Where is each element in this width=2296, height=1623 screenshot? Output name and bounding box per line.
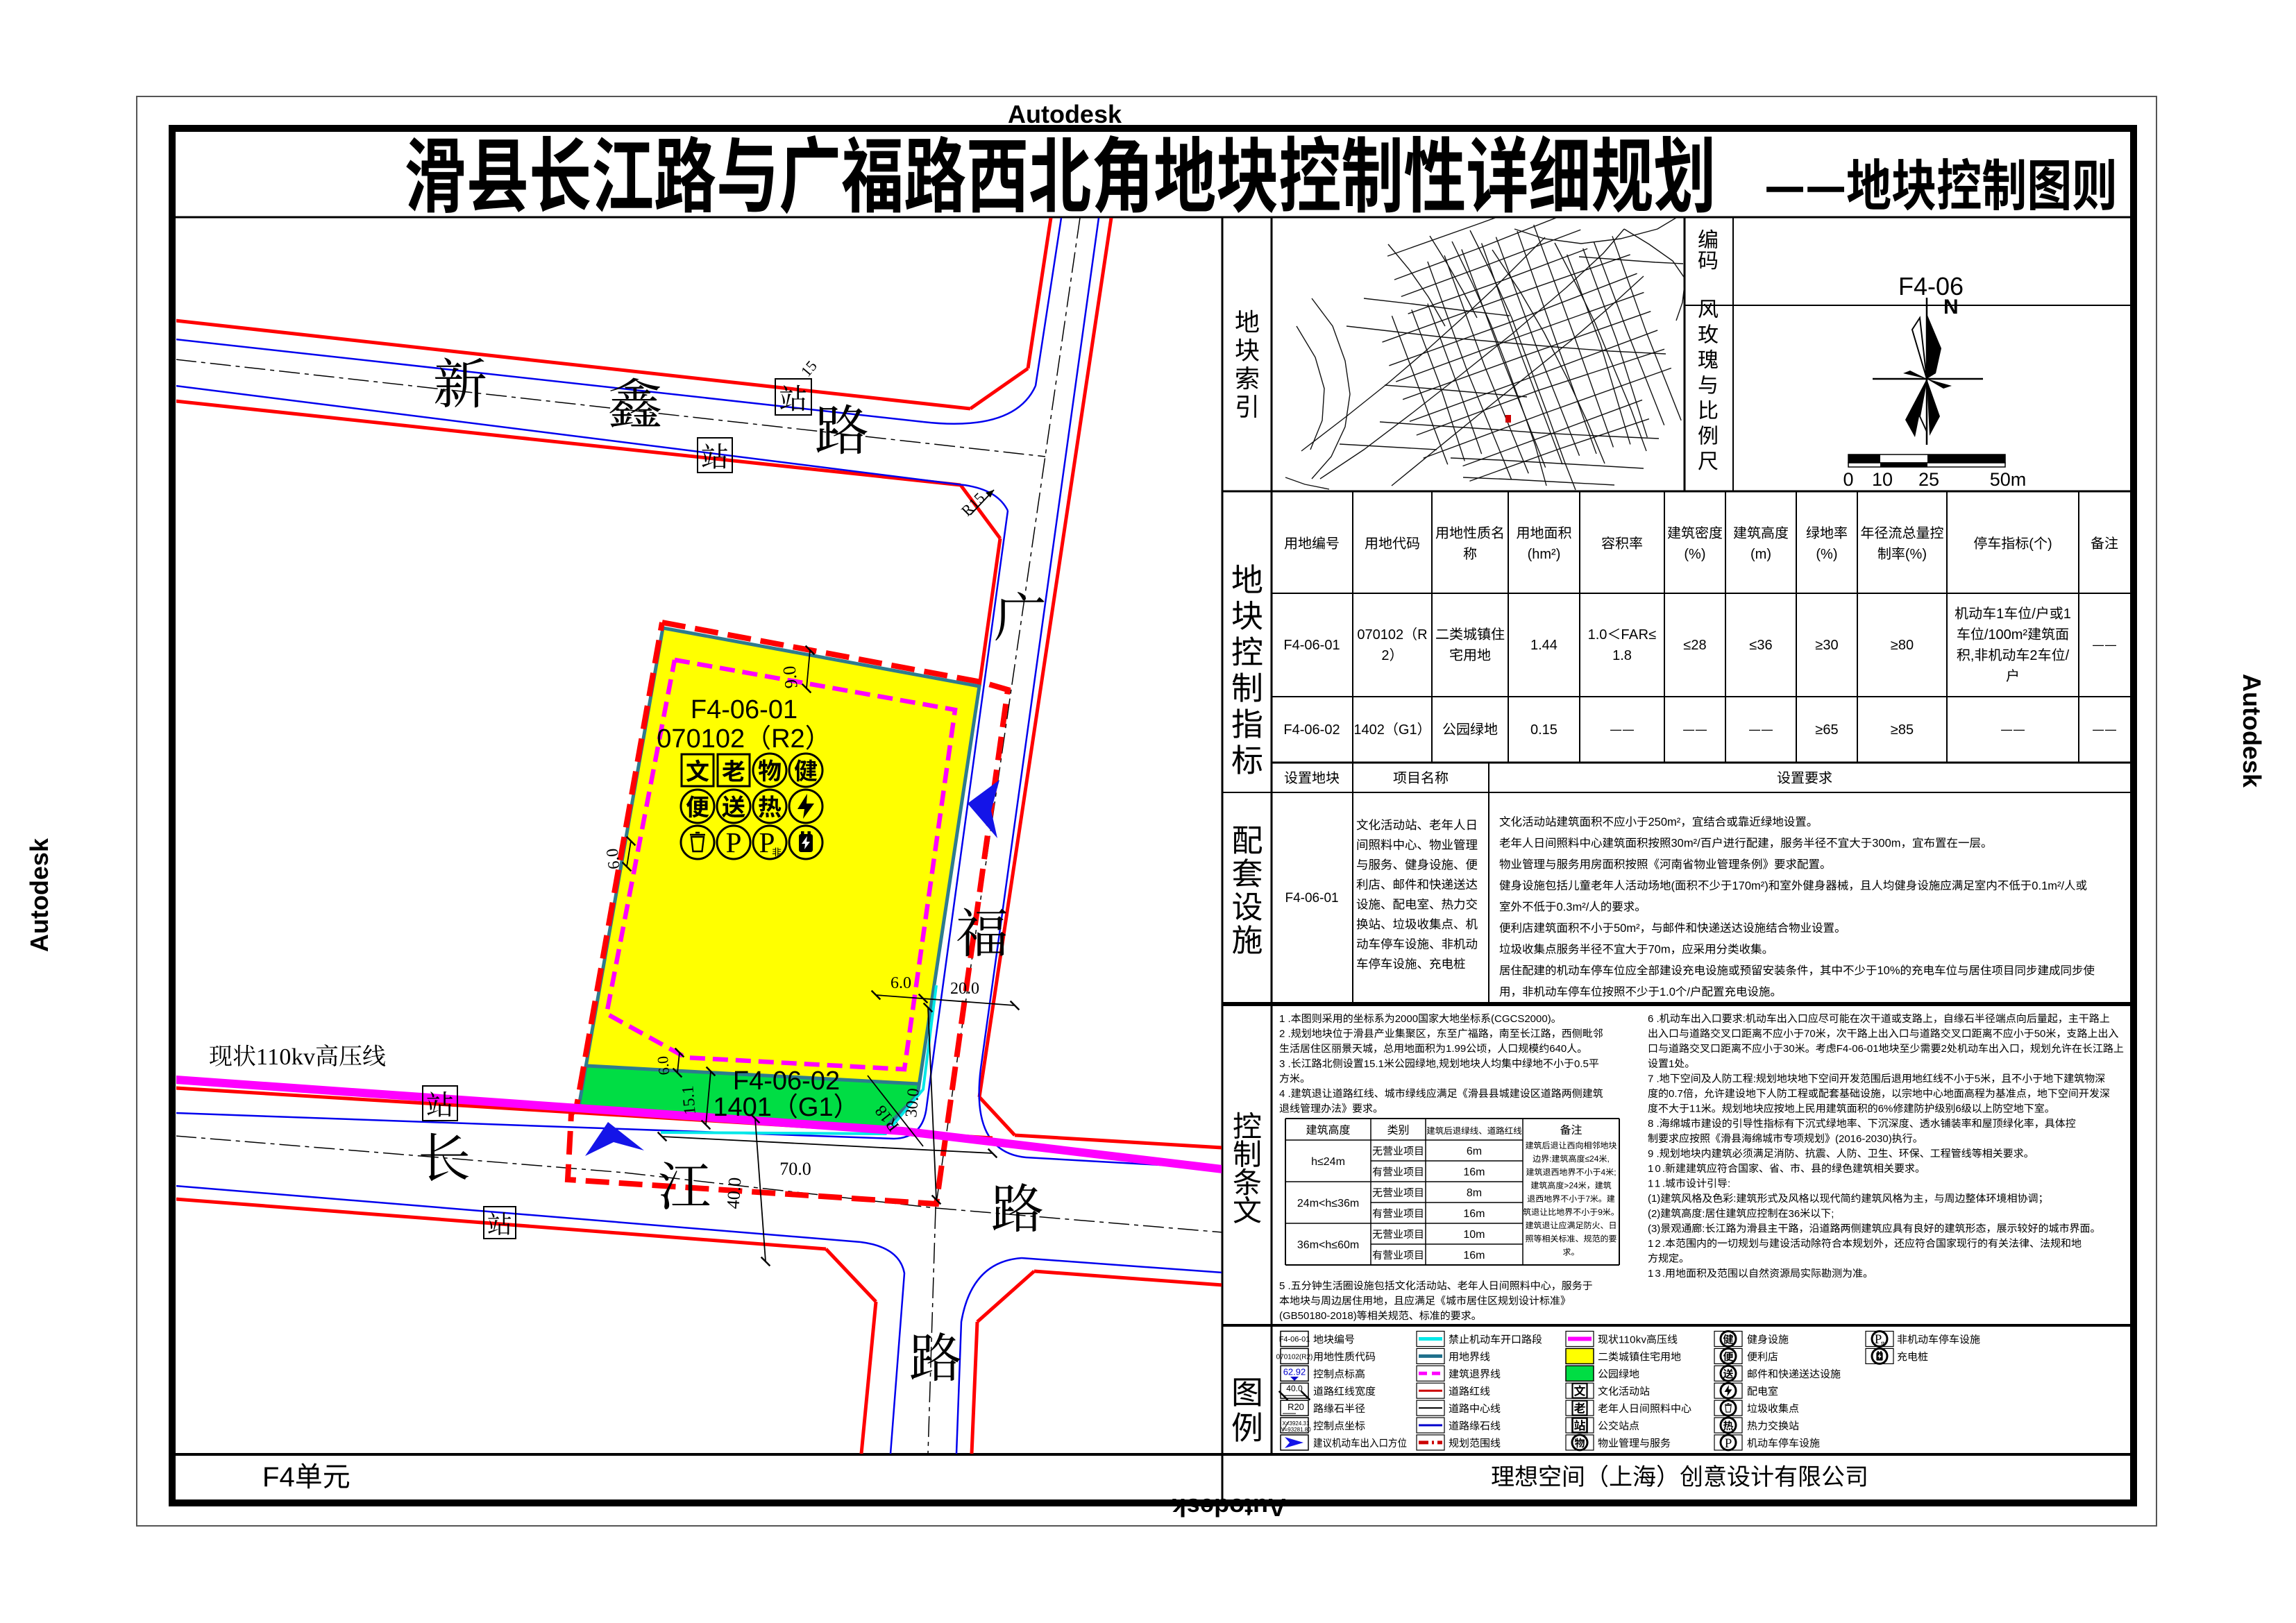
svg-text:070102: 070102 [1357,627,1403,643]
svg-text:Autodesk: Autodesk [2238,674,2266,788]
svg-text:12.: 12. [1648,1238,1665,1250]
svg-text:15.1: 15.1 [679,1085,700,1116]
svg-text:≥85: ≥85 [1891,722,1914,738]
svg-text:50m²: 50m² [1614,922,1640,935]
svg-text:6.0: 6.0 [604,847,624,870]
svg-text:P: P [1725,1436,1732,1451]
svg-text:h≤24m: h≤24m [1311,1156,1345,1168]
svg-text:070102: 070102 [657,724,745,754]
svg-text:2: 2 [1941,1043,1947,1055]
svg-text::: : [1733,1193,1736,1205]
svg-text:36m<h≤60m: 36m<h≤60m [1297,1239,1359,1251]
svg-text:F4-06-01: F4-06-01 [1837,1043,1879,1055]
svg-text:(CGCS2000): (CGCS2000) [1491,1013,1551,1025]
svg-text:10: 10 [1872,469,1893,490]
svg-text::: : [1728,1178,1730,1190]
svg-text:30: 30 [1783,1043,1795,1055]
svg-text::: : [1753,1073,1756,1085]
svg-text:2: 2 [2029,648,2037,663]
svg-text:50: 50 [2034,1028,2046,1040]
svg-text::: : [1743,1013,1746,1025]
svg-text:(1): (1) [1648,1193,1660,1205]
svg-text:(: ( [2029,536,2034,552]
svg-text:F4-06-01: F4-06-01 [1279,1336,1310,1344]
svg-text:1: 1 [1996,606,2004,622]
svg-text:0.5: 0.5 [1574,1058,1589,1070]
svg-text:/: / [1687,986,1690,999]
svg-text:40.0: 40.0 [1286,1384,1303,1393]
svg-text:P: P [726,826,742,858]
svg-text:(GB50180-2018): (GB50180-2018) [1279,1310,1357,1322]
svg-text:(%): (%) [1905,547,1927,562]
svg-text:,: , [1607,1154,1610,1164]
svg-text:/100m²: /100m² [1984,627,2028,643]
svg-text:11: 11 [1689,1103,1701,1115]
svg-text:1: 1 [1669,1058,1674,1070]
svg-text:F4-06-01: F4-06-01 [691,695,797,724]
svg-text:0.1m²/: 0.1m²/ [2032,880,2064,892]
svg-text:;: ; [1614,1167,1616,1177]
svg-text:70.0: 70.0 [779,1159,811,1179]
svg-text:P: P [1875,1332,1882,1347]
svg-text:25: 25 [1918,469,1939,490]
svg-text:13.: 13. [1648,1268,1665,1280]
svg-text:/: / [2066,648,2070,663]
svg-text:≤36: ≤36 [1749,638,1772,653]
svg-text:G1: G1 [1399,722,1417,738]
svg-text:36: 36 [1789,1208,1800,1220]
svg-text:0.15: 0.15 [1530,722,1558,738]
svg-text:110kv: 110kv [1619,1334,1647,1346]
svg-text:250m²: 250m² [1648,816,1681,829]
svg-text:2: 2 [1381,648,1389,663]
svg-text:≤28: ≤28 [1683,638,1706,653]
svg-text:≥30: ≥30 [1815,638,1838,653]
svg-text:4: 4 [1601,1167,1606,1177]
svg-text:1.0: 1.0 [1588,627,1607,643]
svg-text:16m: 16m [1463,1250,1485,1261]
svg-text::: : [1702,1208,1705,1220]
svg-text:1.8: 1.8 [1612,648,1632,663]
svg-text:30m²/: 30m²/ [1671,838,1701,850]
svg-text:/: / [2032,606,2036,622]
svg-text:1.44: 1.44 [1530,638,1558,653]
svg-text:10.: 10. [1648,1163,1665,1175]
svg-text:070102(R2): 070102(R2) [1276,1353,1313,1361]
svg-text:Autodesk: Autodesk [25,838,53,952]
svg-text:9.0: 9.0 [779,665,801,689]
svg-text:N: N [1943,296,1959,318]
svg-text:2000: 2000 [1395,1013,1418,1025]
svg-text:Autodesk: Autodesk [1172,1493,1286,1522]
svg-text:≤24: ≤24 [1585,1154,1599,1164]
svg-text:5: 5 [1975,1073,1980,1085]
svg-text:F4-06-02: F4-06-02 [733,1067,840,1096]
svg-text:≥80: ≥80 [1891,638,1914,653]
svg-text:1: 1 [2063,606,2071,622]
svg-text:15.1: 15.1 [1364,1058,1384,1070]
svg-text:0.3m²/: 0.3m²/ [1557,901,1589,913]
svg-text:(2016-2030): (2016-2030) [1835,1133,1892,1145]
svg-text:170m²): 170m²) [1732,880,1769,892]
svg-text:24m<h≤36m: 24m<h≤36m [1297,1198,1359,1209]
svg-text:R2: R2 [771,724,805,754]
svg-text:16m: 16m [1463,1166,1485,1178]
svg-text:640: 640 [1549,1043,1567,1055]
svg-text:R20: R20 [1288,1402,1304,1412]
svg-text:40.0: 40.0 [723,1177,745,1209]
svg-text:(m): (m) [1750,547,1771,562]
svg-text:F4-06-02: F4-06-02 [1283,722,1340,738]
svg-text:20.0: 20.0 [950,980,979,998]
svg-text:11.: 11. [1648,1178,1665,1190]
svg-text:110kv: 110kv [256,1044,315,1070]
svg-text:(: ( [1671,880,1675,892]
svg-text:8m: 8m [1467,1187,1482,1199]
svg-text:FAR≤: FAR≤ [1621,627,1656,643]
svg-text:1401: 1401 [713,1093,772,1122]
svg-text:1.0: 1.0 [1660,986,1675,999]
svg-text:R: R [1417,627,1427,643]
svg-text:62.92: 62.92 [1283,1366,1306,1377]
svg-text:6: 6 [1955,1103,1961,1115]
svg-text:F4-06-01: F4-06-01 [1283,638,1340,653]
svg-text:9: 9 [1598,1207,1603,1217]
svg-text:Autodesk: Autodesk [1008,100,1122,128]
svg-text:70: 70 [1804,1028,1816,1040]
svg-text:6.0: 6.0 [654,1055,673,1076]
svg-text:(%): (%) [1816,547,1837,562]
svg-text:16m: 16m [1463,1208,1485,1220]
svg-text:10m: 10m [1463,1229,1485,1241]
svg-text:(3): (3) [1648,1223,1660,1234]
svg-text:30.0: 30.0 [902,1087,923,1118]
svg-text:6.0: 6.0 [890,974,911,992]
svg-text:≥65: ≥65 [1815,722,1838,738]
svg-text:): ) [2048,536,2052,552]
svg-text:(2): (2) [1648,1208,1660,1220]
svg-text:F4: F4 [262,1462,295,1493]
svg-text:,: , [1436,1058,1439,1070]
svg-text:,: , [1970,648,1975,663]
svg-text:7: 7 [1585,1194,1590,1204]
svg-text:F4-06-01: F4-06-01 [1285,891,1339,906]
svg-text:1.99: 1.99 [1446,1043,1466,1055]
svg-text:(%): (%) [1684,547,1705,562]
svg-text:0.7: 0.7 [1669,1088,1683,1100]
svg-text:(hm²): (hm²) [1528,547,1561,562]
svg-text:70m: 70m [1648,944,1671,956]
svg-text:6%: 6% [1878,1103,1893,1115]
svg-text:;: ; [1831,1208,1834,1220]
svg-text::: : [1702,1223,1705,1234]
svg-text:>24: >24 [1564,1181,1578,1191]
svg-text:300m: 300m [1872,838,1900,850]
svg-text::: : [1549,1154,1551,1164]
svg-text:50m: 50m [1990,469,2027,490]
svg-text:1402: 1402 [1353,722,1385,738]
svg-text:0: 0 [1843,469,1854,490]
svg-text:G1: G1 [798,1093,834,1122]
svg-text:10%: 10% [1877,965,1900,977]
svg-text:6m: 6m [1467,1146,1482,1157]
